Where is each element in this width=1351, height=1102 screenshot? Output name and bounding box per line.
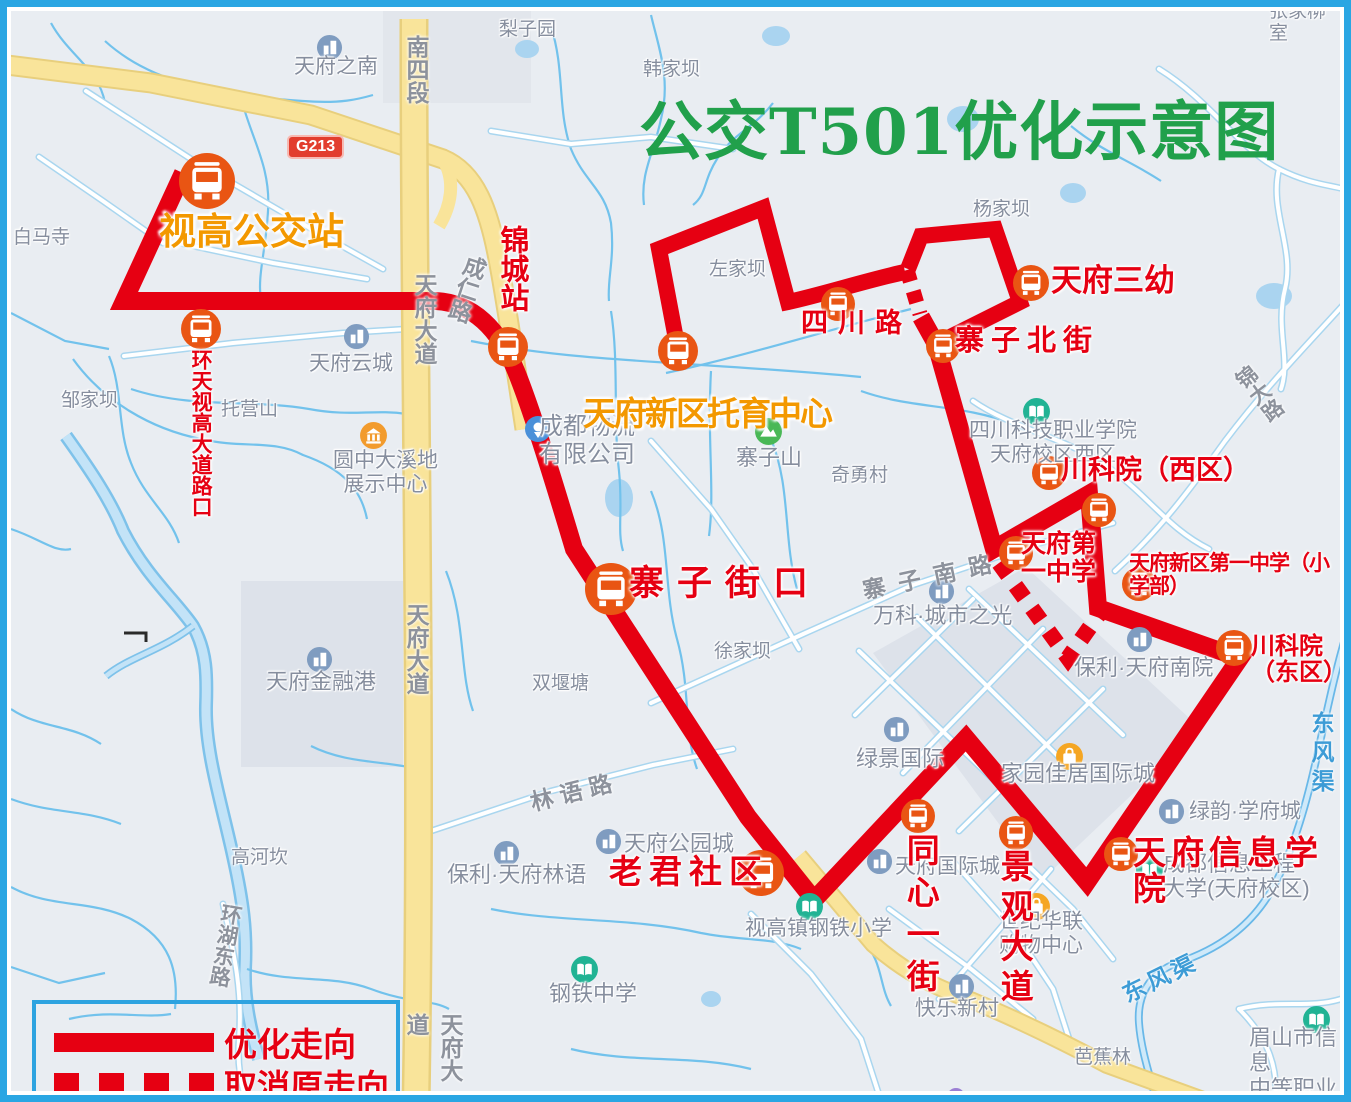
station-label-tuoyu: 天府新区托育中心 [583,387,831,435]
place-label: 白马寺 [13,227,70,249]
station-label-ckxy-west: 川科院（西区） [1061,456,1250,486]
place-label: 梨子园 [499,19,556,41]
place-label: 保利·天府林语 [447,862,586,887]
basemap-svg [11,11,1340,1091]
page-title: 公交T501优化示意图 [639,81,1279,173]
station-label-no1-middle: 天府第 一中学 [1021,531,1096,586]
legend-cancelled-label: 取消原走向 [224,1060,389,1091]
place-label: 寨子山 [736,445,802,470]
place-label: 韩家坝 [643,59,700,81]
place-label: 视高镇钢铁小学 [745,917,892,941]
place-label: 张家柳室 [1269,11,1340,45]
map-frame: 天府之南 梨子园 韩家坝 张家柳室 左家坝 杨家坝 白马寺 邹家坝 托营山 天府… [0,0,1351,1102]
road-label-tianfu-1: 天府大道 [407,273,441,365]
station-label-xinxi: 天府信息学院 [1133,835,1340,908]
corner-mark [124,633,146,642]
road-label-nansiduan: 南四段 [399,35,433,104]
place-label: 高河坎 [231,847,288,869]
building-icon [1127,627,1152,652]
station-label-primary: 天府新区第一中学（小学部） [1129,552,1340,598]
school-icon [796,893,823,920]
place-label: 徐家坝 [714,641,771,663]
legend-row-optimized: 优化走向 [54,1018,356,1066]
station-label-sanyou: 天府三幼 [1051,264,1175,298]
building-icon [867,849,892,874]
bus-stop-icon-huantian [181,309,221,349]
road-badge-g213: G213 [287,135,344,159]
school-icon [571,956,598,983]
legend-row-cancelled: 取消原走向 [54,1060,389,1091]
station-label-zhaizibeijie: 寨子北街 [955,326,1099,358]
place-label: 芭蕉林 [1074,1047,1131,1069]
station-label-laojun: 老君社区 [609,854,769,890]
map-canvas: 天府之南 梨子园 韩家坝 张家柳室 左家坝 杨家坝 白马寺 邹家坝 托营山 天府… [11,11,1340,1091]
station-label-jingguan: 景观大道 [996,849,1032,1009]
building-icon [949,974,974,999]
place-label: 天府金融港 [266,669,376,694]
legend-box: 优化走向 取消原走向 [32,1000,400,1091]
place-label: 托营山 [221,399,278,421]
place-label: 天府云城 [309,352,393,376]
place-label: 家园佳居国际城 [1001,761,1155,786]
river-label-dongfengqu-1: 东风渠 [1304,711,1338,798]
bus-stop-icon-sanyou [1013,265,1049,301]
place-label: 钢铁中学 [549,981,637,1006]
metro-icon [947,1088,965,1091]
place-label: 双堰塘 [532,673,589,695]
bus-stop-icon-tongxin [901,799,935,833]
legend-optimized-label: 优化走向 [224,1018,356,1066]
station-label-ckxy-east: 川科院（东区） [1251,634,1340,687]
road-label-tianfu-2: 天府大道 [399,603,433,695]
bus-stop-icon-tuoyu [658,331,698,371]
legend-dashed-line-icon [54,1073,214,1092]
station-label-zhaizijiekou: 寨子街口 [629,565,821,604]
station-label-tongxin: 同心一街 [902,833,938,1001]
bank-icon [360,422,387,449]
place-label: 奇勇村 [831,465,888,487]
building-icon [884,717,909,742]
bus-stop-icon-ckxy-east [1216,630,1252,666]
road-label-tianfu-3: 天府大道 [399,1013,467,1091]
station-label-shigao: 视高公交站 [159,201,344,255]
building-icon [344,324,369,349]
bus-stop-icon-jingguan [999,816,1033,850]
station-label-huantian: 环天视高大道路口 [189,349,212,517]
place-label: 天府之南 [294,55,378,79]
bus-stop-icon-jincheng [488,327,528,367]
bus-stop-icon-route [1082,493,1116,527]
place-label: 绿韵·学府城 [1189,800,1301,824]
place-label: 绿景国际 [856,746,944,771]
place-label: 眉山市信息 中等职业技术学校 [1249,1025,1340,1091]
building-icon [596,829,621,854]
place-label: 圆中大溪地 展示中心 [333,449,438,497]
place-label: 保利·天府南院 [1074,655,1213,680]
station-label-jincheng: 锦城站 [495,225,527,312]
building-icon [1159,799,1184,824]
road-branch [439,159,451,226]
station-label-sichuanlu: 四川路 [801,309,912,339]
place-label: 杨家坝 [973,199,1030,221]
place-label: 万科·城市之光 [873,603,1012,628]
place-label: 左家坝 [709,259,766,281]
place-label: 邹家坝 [61,390,118,412]
legend-solid-line-icon [54,1033,214,1052]
